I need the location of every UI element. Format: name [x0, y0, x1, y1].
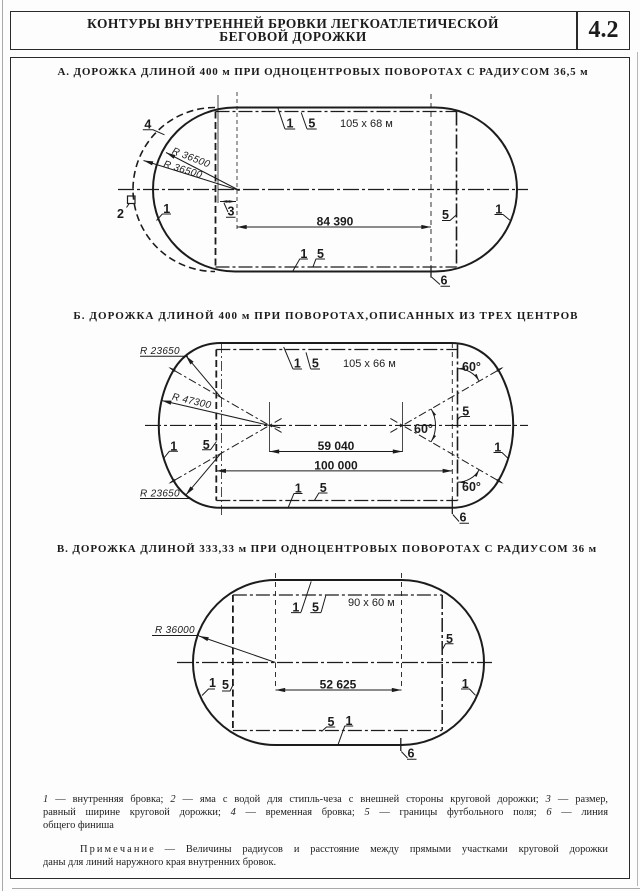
svg-text:1: 1: [346, 714, 353, 728]
svg-text:60°: 60°: [462, 360, 481, 374]
svg-text:5: 5: [317, 247, 324, 261]
svg-text:5: 5: [328, 715, 335, 729]
svg-text:4: 4: [144, 118, 151, 132]
svg-text:6: 6: [408, 747, 415, 761]
svg-text:1: 1: [495, 203, 502, 217]
svg-text:90 x 60 м: 90 x 60 м: [348, 597, 395, 609]
svg-text:1: 1: [292, 600, 299, 614]
svg-text:5: 5: [312, 600, 319, 614]
svg-text:6: 6: [441, 274, 448, 288]
svg-text:2: 2: [117, 207, 124, 221]
svg-text:1: 1: [209, 676, 216, 690]
svg-text:6: 6: [460, 511, 467, 525]
svg-text:5: 5: [308, 117, 315, 131]
svg-text:60°: 60°: [414, 422, 433, 436]
svg-text:59 040: 59 040: [318, 439, 355, 453]
svg-text:5: 5: [320, 481, 327, 495]
svg-text:3: 3: [228, 205, 235, 219]
svg-text:1: 1: [163, 202, 170, 216]
svg-text:5: 5: [442, 208, 449, 222]
svg-text:R 23650: R 23650: [140, 346, 180, 357]
svg-text:5: 5: [312, 357, 319, 371]
svg-text:105 x 66 м: 105 x 66 м: [343, 358, 396, 370]
svg-text:105 x 68 м: 105 x 68 м: [340, 118, 393, 130]
svg-text:100 000: 100 000: [314, 458, 358, 472]
svg-text:5: 5: [222, 678, 229, 692]
svg-text:1: 1: [170, 439, 177, 453]
svg-text:1: 1: [300, 247, 307, 261]
svg-text:1: 1: [295, 482, 302, 496]
svg-text:60°: 60°: [462, 480, 481, 494]
svg-text:R 47300: R 47300: [171, 392, 212, 412]
svg-text:84 390: 84 390: [317, 215, 354, 229]
svg-text:1: 1: [462, 677, 469, 691]
svg-text:R 36000: R 36000: [155, 625, 195, 636]
svg-text:1: 1: [287, 117, 294, 131]
svg-text:5: 5: [203, 438, 210, 452]
svg-text:R 23650: R 23650: [140, 489, 180, 500]
svg-text:52 625: 52 625: [320, 677, 357, 691]
svg-text:1: 1: [494, 441, 501, 455]
svg-text:5: 5: [462, 404, 469, 418]
svg-text:1: 1: [294, 357, 301, 371]
svg-text:5: 5: [446, 632, 453, 646]
